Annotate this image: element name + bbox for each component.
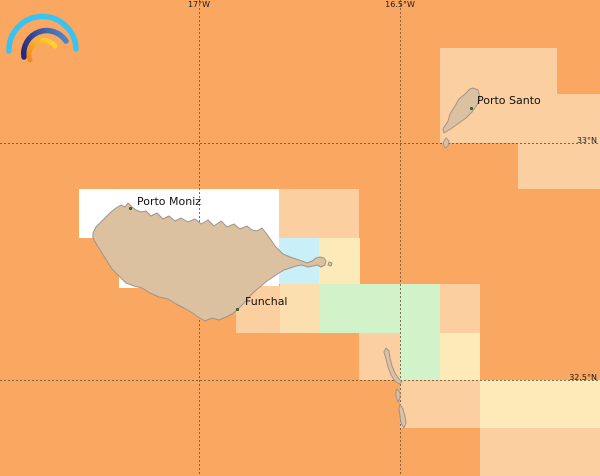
rainbow-icon bbox=[0, 0, 90, 70]
parallel-label: 33°N bbox=[577, 136, 597, 145]
parallel-label: 32.5°N bbox=[569, 373, 597, 382]
meridian-label: 16.5°W bbox=[385, 0, 415, 9]
meridian-label: 17°W bbox=[188, 0, 210, 9]
grid-labels-layer: 17°W16.5°W33°N32.5°N bbox=[0, 0, 600, 476]
map-canvas[interactable]: Porto MonizFunchalPorto Santo 17°W16.5°W… bbox=[0, 0, 600, 476]
rainbow-arc-inner bbox=[29, 40, 55, 60]
